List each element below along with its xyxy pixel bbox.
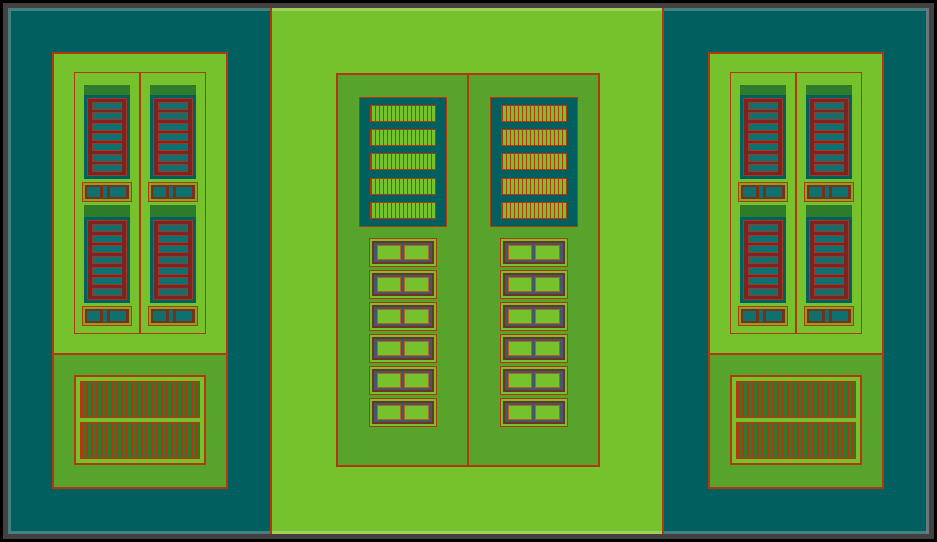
capacitor-finger-bar: [80, 422, 200, 459]
via-pad: [535, 405, 560, 420]
gate-finger-slot: [158, 123, 188, 131]
contact-band: [82, 306, 132, 326]
via-pad: [508, 277, 533, 292]
via-pair-row: [500, 238, 568, 267]
contact-pad: [766, 187, 782, 197]
gate-finger-slot: [158, 235, 188, 243]
gate-finger-slot: [92, 277, 122, 285]
contact-band: [804, 182, 854, 202]
contact-band-core: [85, 185, 129, 199]
via-pad: [508, 309, 533, 324]
well-tap-band: [84, 85, 130, 95]
via-row-frame: [372, 273, 434, 296]
via-row-frame: [503, 241, 565, 264]
diffusion-band: [740, 205, 786, 217]
gate-finger-slot: [814, 256, 844, 264]
contact-band: [738, 182, 788, 202]
center-cell-column: [338, 75, 467, 465]
transistor-pair-frame: [730, 72, 862, 334]
capacitor-frame: [74, 375, 206, 465]
gate-finger-slot: [158, 245, 188, 253]
via-pair-row: [369, 302, 437, 331]
via-pair-row: [369, 366, 437, 395]
via-pad: [535, 309, 560, 324]
gate-finger-slot: [748, 102, 778, 110]
contact-bar: [825, 186, 829, 198]
poly-hatch-list: [360, 98, 446, 226]
finger-array-frame: [743, 220, 783, 300]
gate-finger-slot: [748, 112, 778, 120]
contact-bar: [759, 310, 763, 322]
poly-hatch-bar: [370, 129, 436, 146]
finger-array-bottom: [150, 217, 196, 303]
well-tap-band: [740, 85, 786, 95]
gate-finger-slot: [814, 277, 844, 285]
contact-band-core: [151, 309, 195, 323]
left-well-region: [8, 8, 270, 534]
contact-pad: [832, 311, 848, 321]
contact-pad: [743, 311, 756, 321]
gate-finger-slot: [814, 143, 844, 151]
contact-bar: [103, 186, 107, 198]
via-pair-row: [500, 302, 568, 331]
finger-array-frame: [809, 98, 849, 176]
contact-pad: [176, 311, 192, 321]
finger-array-frame: [743, 98, 783, 176]
gate-finger-slot: [158, 154, 188, 162]
contact-band: [148, 182, 198, 202]
poly-hatch-bar: [370, 105, 436, 122]
right-well-region: [664, 8, 929, 534]
gate-finger-slot: [814, 267, 844, 275]
poly-hatch-block: [490, 97, 578, 227]
contact-pad: [743, 187, 756, 197]
finger-array-top: [806, 95, 852, 179]
contact-bar: [103, 310, 107, 322]
contact-band-core: [741, 309, 785, 323]
contact-pad: [110, 187, 126, 197]
gate-finger-slot: [92, 123, 122, 131]
via-pair-row: [369, 334, 437, 363]
gate-finger-slot: [748, 235, 778, 243]
gate-finger-slot: [814, 235, 844, 243]
gate-finger-slot: [748, 267, 778, 275]
gate-finger-slot: [158, 256, 188, 264]
left-cell-block: [52, 52, 228, 489]
via-pad: [535, 341, 560, 356]
gate-finger-slot: [748, 133, 778, 141]
contact-pad: [766, 311, 782, 321]
gate-finger-slot: [748, 123, 778, 131]
gate-finger-slot: [92, 154, 122, 162]
finger-array-top: [150, 95, 196, 179]
contact-band-core: [807, 185, 851, 199]
via-pad: [508, 341, 533, 356]
via-pad: [377, 277, 402, 292]
gate-finger-slot: [748, 164, 778, 172]
via-pad: [508, 405, 533, 420]
via-pad: [404, 373, 429, 388]
via-pair-row: [500, 270, 568, 299]
via-row-frame: [372, 401, 434, 424]
gate-finger-slot: [814, 288, 844, 296]
capacitor-finger-bar: [80, 381, 200, 418]
contact-pad: [87, 311, 100, 321]
contact-bar: [169, 186, 173, 198]
transistor-column: [139, 73, 205, 333]
poly-hatch-bar: [501, 202, 567, 219]
gate-finger-slot: [748, 154, 778, 162]
via-pair-row: [500, 398, 568, 427]
gate-finger-slot: [814, 112, 844, 120]
transistor-column: [75, 73, 139, 333]
via-row-frame: [372, 369, 434, 392]
gate-finger-slot: [92, 267, 122, 275]
gate-finger-slot: [814, 164, 844, 172]
via-row-stack: [500, 238, 568, 427]
gate-finger-slot: [158, 102, 188, 110]
poly-hatch-bar: [370, 202, 436, 219]
contact-pad: [153, 311, 166, 321]
poly-hatch-bar: [501, 105, 567, 122]
via-pad: [508, 373, 533, 388]
contact-band-core: [151, 185, 195, 199]
via-pair-row: [500, 366, 568, 395]
gate-finger-slot: [814, 245, 844, 253]
finger-array-bottom: [740, 217, 786, 303]
via-row-frame: [503, 305, 565, 328]
side-cell-upper-section: [710, 54, 882, 357]
via-pad: [404, 309, 429, 324]
side-cell-upper-section: [54, 54, 226, 357]
gate-finger-slot: [92, 164, 122, 172]
via-pad: [377, 373, 402, 388]
via-pad: [377, 245, 402, 260]
center-well-region: [270, 8, 664, 534]
gate-finger-slot: [748, 245, 778, 253]
gate-finger-slot: [158, 267, 188, 275]
via-pad: [535, 373, 560, 388]
finger-array-frame: [87, 220, 127, 300]
contact-band: [738, 306, 788, 326]
center-cell-block: [336, 73, 600, 467]
gate-finger-slot: [92, 224, 122, 232]
gate-finger-slot: [814, 224, 844, 232]
poly-hatch-bar: [501, 129, 567, 146]
via-row-stack: [369, 238, 437, 427]
poly-hatch-bar: [501, 153, 567, 170]
contact-band: [148, 306, 198, 326]
well-tap-band: [806, 85, 852, 95]
via-row-frame: [503, 273, 565, 296]
layout-content: [8, 8, 929, 534]
via-pad: [377, 405, 402, 420]
finger-array-frame: [153, 98, 193, 176]
via-pair-row: [369, 238, 437, 267]
gate-finger-slot: [748, 143, 778, 151]
gate-finger-slot: [158, 224, 188, 232]
via-pad: [404, 405, 429, 420]
transistor-column: [795, 73, 861, 333]
poly-hatch-bar: [501, 178, 567, 195]
via-pair-row: [369, 398, 437, 427]
via-row-frame: [503, 369, 565, 392]
via-row-frame: [503, 337, 565, 360]
gate-finger-slot: [92, 133, 122, 141]
via-pad: [404, 277, 429, 292]
finger-array-top: [84, 95, 130, 179]
via-pair-row: [500, 334, 568, 363]
contact-pad: [87, 187, 100, 197]
gate-finger-slot: [158, 288, 188, 296]
diffusion-band: [806, 205, 852, 217]
gate-finger-slot: [748, 224, 778, 232]
contact-band-core: [807, 309, 851, 323]
via-pair-row: [369, 270, 437, 299]
finger-array-bottom: [84, 217, 130, 303]
gate-finger-slot: [814, 102, 844, 110]
finger-array-frame: [153, 220, 193, 300]
poly-hatch-bar: [370, 178, 436, 195]
via-pad: [404, 341, 429, 356]
poly-hatch-bar: [370, 153, 436, 170]
gate-finger-slot: [814, 133, 844, 141]
right-cell-block: [708, 52, 884, 489]
finger-array-top: [740, 95, 786, 179]
gate-finger-slot: [92, 143, 122, 151]
via-pad: [535, 277, 560, 292]
transistor-pair-frame: [74, 72, 206, 334]
via-row-frame: [372, 337, 434, 360]
well-tap-band: [150, 85, 196, 95]
contact-pad: [809, 187, 822, 197]
gate-finger-slot: [158, 164, 188, 172]
gate-finger-slot: [748, 277, 778, 285]
gate-finger-slot: [92, 288, 122, 296]
contact-pad: [153, 187, 166, 197]
gate-finger-slot: [92, 235, 122, 243]
contact-pad: [110, 311, 126, 321]
gate-finger-slot: [92, 112, 122, 120]
gate-finger-slot: [92, 256, 122, 264]
contact-bar: [759, 186, 763, 198]
contact-bar: [169, 310, 173, 322]
contact-pad: [809, 311, 822, 321]
contact-pad: [176, 187, 192, 197]
via-row-frame: [372, 305, 434, 328]
gate-finger-slot: [92, 245, 122, 253]
via-pad: [377, 309, 402, 324]
transistor-column: [731, 73, 795, 333]
finger-array-frame: [809, 220, 849, 300]
contact-band-core: [85, 309, 129, 323]
gate-finger-slot: [92, 102, 122, 110]
gate-finger-slot: [814, 123, 844, 131]
via-pad: [535, 245, 560, 260]
chip-layout-canvas: [0, 0, 937, 542]
contact-bar: [825, 310, 829, 322]
capacitor-finger-bar: [736, 422, 856, 459]
gate-finger-slot: [158, 133, 188, 141]
poly-hatch-list: [491, 98, 577, 226]
via-row-frame: [372, 241, 434, 264]
center-cell-column: [467, 75, 598, 465]
via-pad: [508, 245, 533, 260]
capacitor-frame: [730, 375, 862, 465]
finger-array-frame: [87, 98, 127, 176]
diffusion-band: [150, 205, 196, 217]
via-pad: [404, 245, 429, 260]
poly-hatch-block: [359, 97, 447, 227]
gate-finger-slot: [748, 288, 778, 296]
via-pad: [377, 341, 402, 356]
gate-finger-slot: [158, 143, 188, 151]
contact-band: [82, 182, 132, 202]
contact-band-core: [741, 185, 785, 199]
gate-finger-slot: [158, 277, 188, 285]
gate-finger-slot: [158, 112, 188, 120]
gate-finger-slot: [748, 256, 778, 264]
contact-pad: [832, 187, 848, 197]
via-row-frame: [503, 401, 565, 424]
finger-array-bottom: [806, 217, 852, 303]
diffusion-band: [84, 205, 130, 217]
side-cell-lower-section: [710, 353, 882, 487]
contact-band: [804, 306, 854, 326]
side-cell-lower-section: [54, 353, 226, 487]
capacitor-finger-bar: [736, 381, 856, 418]
gate-finger-slot: [814, 154, 844, 162]
